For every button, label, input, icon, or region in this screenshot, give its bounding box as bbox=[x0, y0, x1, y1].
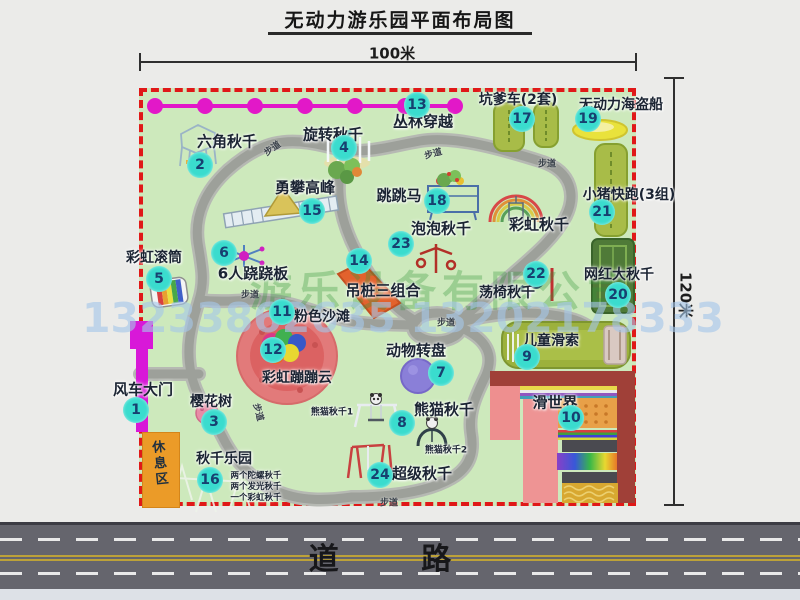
attraction-marker-1: 1 bbox=[123, 397, 149, 423]
attraction-marker-18: 18 bbox=[424, 188, 450, 214]
attraction-label-20: 网红大秋千 bbox=[584, 264, 654, 284]
attraction-marker-5: 5 bbox=[146, 266, 172, 292]
attraction-label-5: 彩虹滚筒 bbox=[126, 247, 182, 267]
attraction-label-24: 超级秋千 bbox=[392, 463, 452, 484]
attraction-label-14: 吊桩三组合 bbox=[345, 280, 420, 301]
annotation-layer: 风车大门1六角秋千2樱花树3旋转秋千4彩虹滚筒56人跷跷板6动物转盘7熊猫秋千8… bbox=[0, 0, 800, 600]
attraction-label-12: 彩虹蹦蹦云 bbox=[262, 367, 332, 387]
attraction-label-11: 粉色沙滩 bbox=[294, 306, 350, 326]
footpath-label-6: 步道 bbox=[250, 402, 267, 423]
attraction-marker-9: 9 bbox=[514, 344, 540, 370]
footpath-label-2: 步道 bbox=[538, 157, 556, 170]
attraction-label-2: 六角秋千 bbox=[197, 131, 257, 152]
attraction-marker-3: 3 bbox=[201, 409, 227, 435]
attraction-label-1: 风车大门 bbox=[113, 379, 173, 400]
attraction-marker-6: 6 bbox=[211, 240, 237, 266]
attraction-marker-19: 19 bbox=[575, 106, 601, 132]
attraction-marker-23: 23 bbox=[388, 231, 414, 257]
roadside-strip bbox=[0, 589, 800, 600]
attraction-marker-16: 16 bbox=[197, 467, 223, 493]
attraction-marker-15: 15 bbox=[299, 198, 325, 224]
footpath-label-4: 步道 bbox=[437, 316, 455, 329]
footpath-label-5: 步道 bbox=[380, 496, 398, 509]
attraction-marker-2: 2 bbox=[187, 152, 213, 178]
attraction-marker-8: 8 bbox=[389, 410, 415, 436]
attraction-label-7: 动物转盘 bbox=[386, 340, 446, 361]
attraction-marker-24: 24 bbox=[367, 462, 393, 488]
road-label: 道 路 bbox=[309, 534, 487, 578]
footpath-label-1: 步道 bbox=[423, 144, 444, 161]
attraction-marker-11: 11 bbox=[269, 299, 295, 325]
attraction-marker-7: 7 bbox=[428, 360, 454, 386]
attraction-marker-20: 20 bbox=[605, 282, 631, 308]
attraction-marker-22: 22 bbox=[523, 261, 549, 287]
attraction-label-6: 6人跷跷板 bbox=[218, 263, 288, 284]
attraction-marker-10: 10 bbox=[558, 405, 584, 431]
attraction-marker-4: 4 bbox=[331, 135, 357, 161]
footpath-label-3: 步道 bbox=[241, 288, 259, 301]
attraction-marker-14: 14 bbox=[346, 248, 372, 274]
extra-label-5: 一个彩虹秋千 bbox=[230, 491, 281, 503]
attraction-marker-17: 17 bbox=[509, 106, 535, 132]
attraction-marker-12: 12 bbox=[260, 337, 286, 363]
attraction-label-3: 樱花树 bbox=[190, 391, 232, 411]
attraction-label-22: 荡椅秋千 bbox=[479, 282, 535, 302]
attraction-label-8: 熊猫秋千 bbox=[414, 399, 474, 420]
extra-label-2: 熊猫秋千2 bbox=[425, 443, 467, 456]
attraction-label-23: 泡泡秋千 bbox=[411, 218, 471, 239]
attraction-marker-13: 13 bbox=[404, 92, 430, 118]
attraction-marker-21: 21 bbox=[589, 199, 615, 225]
park-layout-map: { "title": "无动力游乐园平面布局图", "dimension_top… bbox=[0, 0, 800, 600]
attraction-label-16: 秋千乐园 bbox=[196, 448, 252, 468]
footpath-label-0: 步道 bbox=[261, 138, 283, 159]
extra-label-1: 熊猫秋千1 bbox=[311, 405, 353, 418]
attraction-label-18: 跳跳马 bbox=[376, 185, 421, 206]
extra-label-0: 彩虹秋千 bbox=[509, 214, 569, 235]
attraction-label-15: 勇攀高峰 bbox=[275, 177, 335, 198]
